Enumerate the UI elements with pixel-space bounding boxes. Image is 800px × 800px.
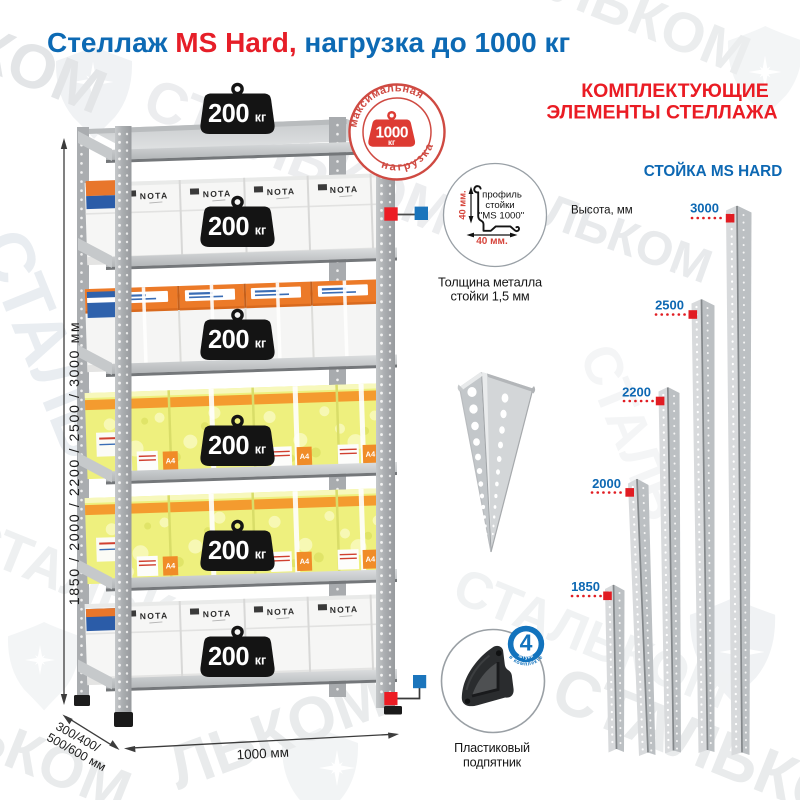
svg-text:NOTA: NOTA — [203, 608, 232, 619]
svg-text:стойки: стойки — [485, 200, 514, 211]
svg-text:2200: 2200 — [622, 385, 651, 400]
svg-text:"MS 1000": "MS 1000" — [479, 211, 524, 222]
svg-text:кг: кг — [388, 138, 396, 147]
svg-text:профиль: профиль — [482, 190, 522, 201]
svg-text:1850 / 2000 / 2200 / 2500 / 30: 1850 / 2000 / 2200 / 2500 / 3000 мм — [67, 321, 83, 606]
svg-text:A4: A4 — [166, 561, 177, 570]
svg-text:NOTA: NOTA — [140, 610, 169, 621]
svg-text:1000 мм: 1000 мм — [236, 745, 289, 763]
svg-text:4: 4 — [520, 630, 533, 656]
svg-text:Высота, мм: Высота, мм — [571, 205, 633, 217]
svg-text:стойки 1,5 мм: стойки 1,5 мм — [450, 289, 529, 304]
svg-text:NOTA: NOTA — [203, 188, 232, 199]
svg-text:2500: 2500 — [655, 298, 684, 313]
svg-text:NOTA: NOTA — [330, 184, 359, 195]
svg-text:A4: A4 — [299, 557, 310, 566]
svg-text:A4: A4 — [365, 555, 376, 564]
svg-text:Пластиковый: Пластиковый — [454, 741, 530, 755]
svg-text:A4: A4 — [166, 456, 177, 465]
svg-text:A4: A4 — [365, 450, 376, 459]
svg-text:A4: A4 — [299, 452, 310, 461]
svg-text:NOTA: NOTA — [330, 604, 359, 615]
svg-text:40 мм.: 40 мм. — [458, 190, 468, 219]
svg-text:1850: 1850 — [571, 579, 600, 594]
svg-text:подпятник: подпятник — [463, 756, 522, 770]
svg-text:Стеллаж MS Hard, нагрузка до 1: Стеллаж MS Hard, нагрузка до 1000 кг — [47, 27, 570, 58]
svg-text:NOTA: NOTA — [267, 606, 296, 617]
svg-text:ЭЛЕМЕНТЫ СТЕЛЛАЖА: ЭЛЕМЕНТЫ СТЕЛЛАЖА — [546, 102, 777, 124]
svg-text:СТОЙКА MS HARD: СТОЙКА MS HARD — [644, 162, 783, 180]
svg-text:NOTA: NOTA — [140, 190, 169, 201]
svg-text:40 мм.: 40 мм. — [476, 236, 508, 247]
svg-text:КОМПЛЕКТУЮЩИЕ: КОМПЛЕКТУЮЩИЕ — [581, 80, 768, 102]
svg-text:2000: 2000 — [592, 476, 621, 491]
svg-text:NOTA: NOTA — [267, 186, 296, 197]
svg-text:Толщина металла: Толщина металла — [438, 275, 543, 290]
svg-text:3000: 3000 — [690, 201, 719, 216]
